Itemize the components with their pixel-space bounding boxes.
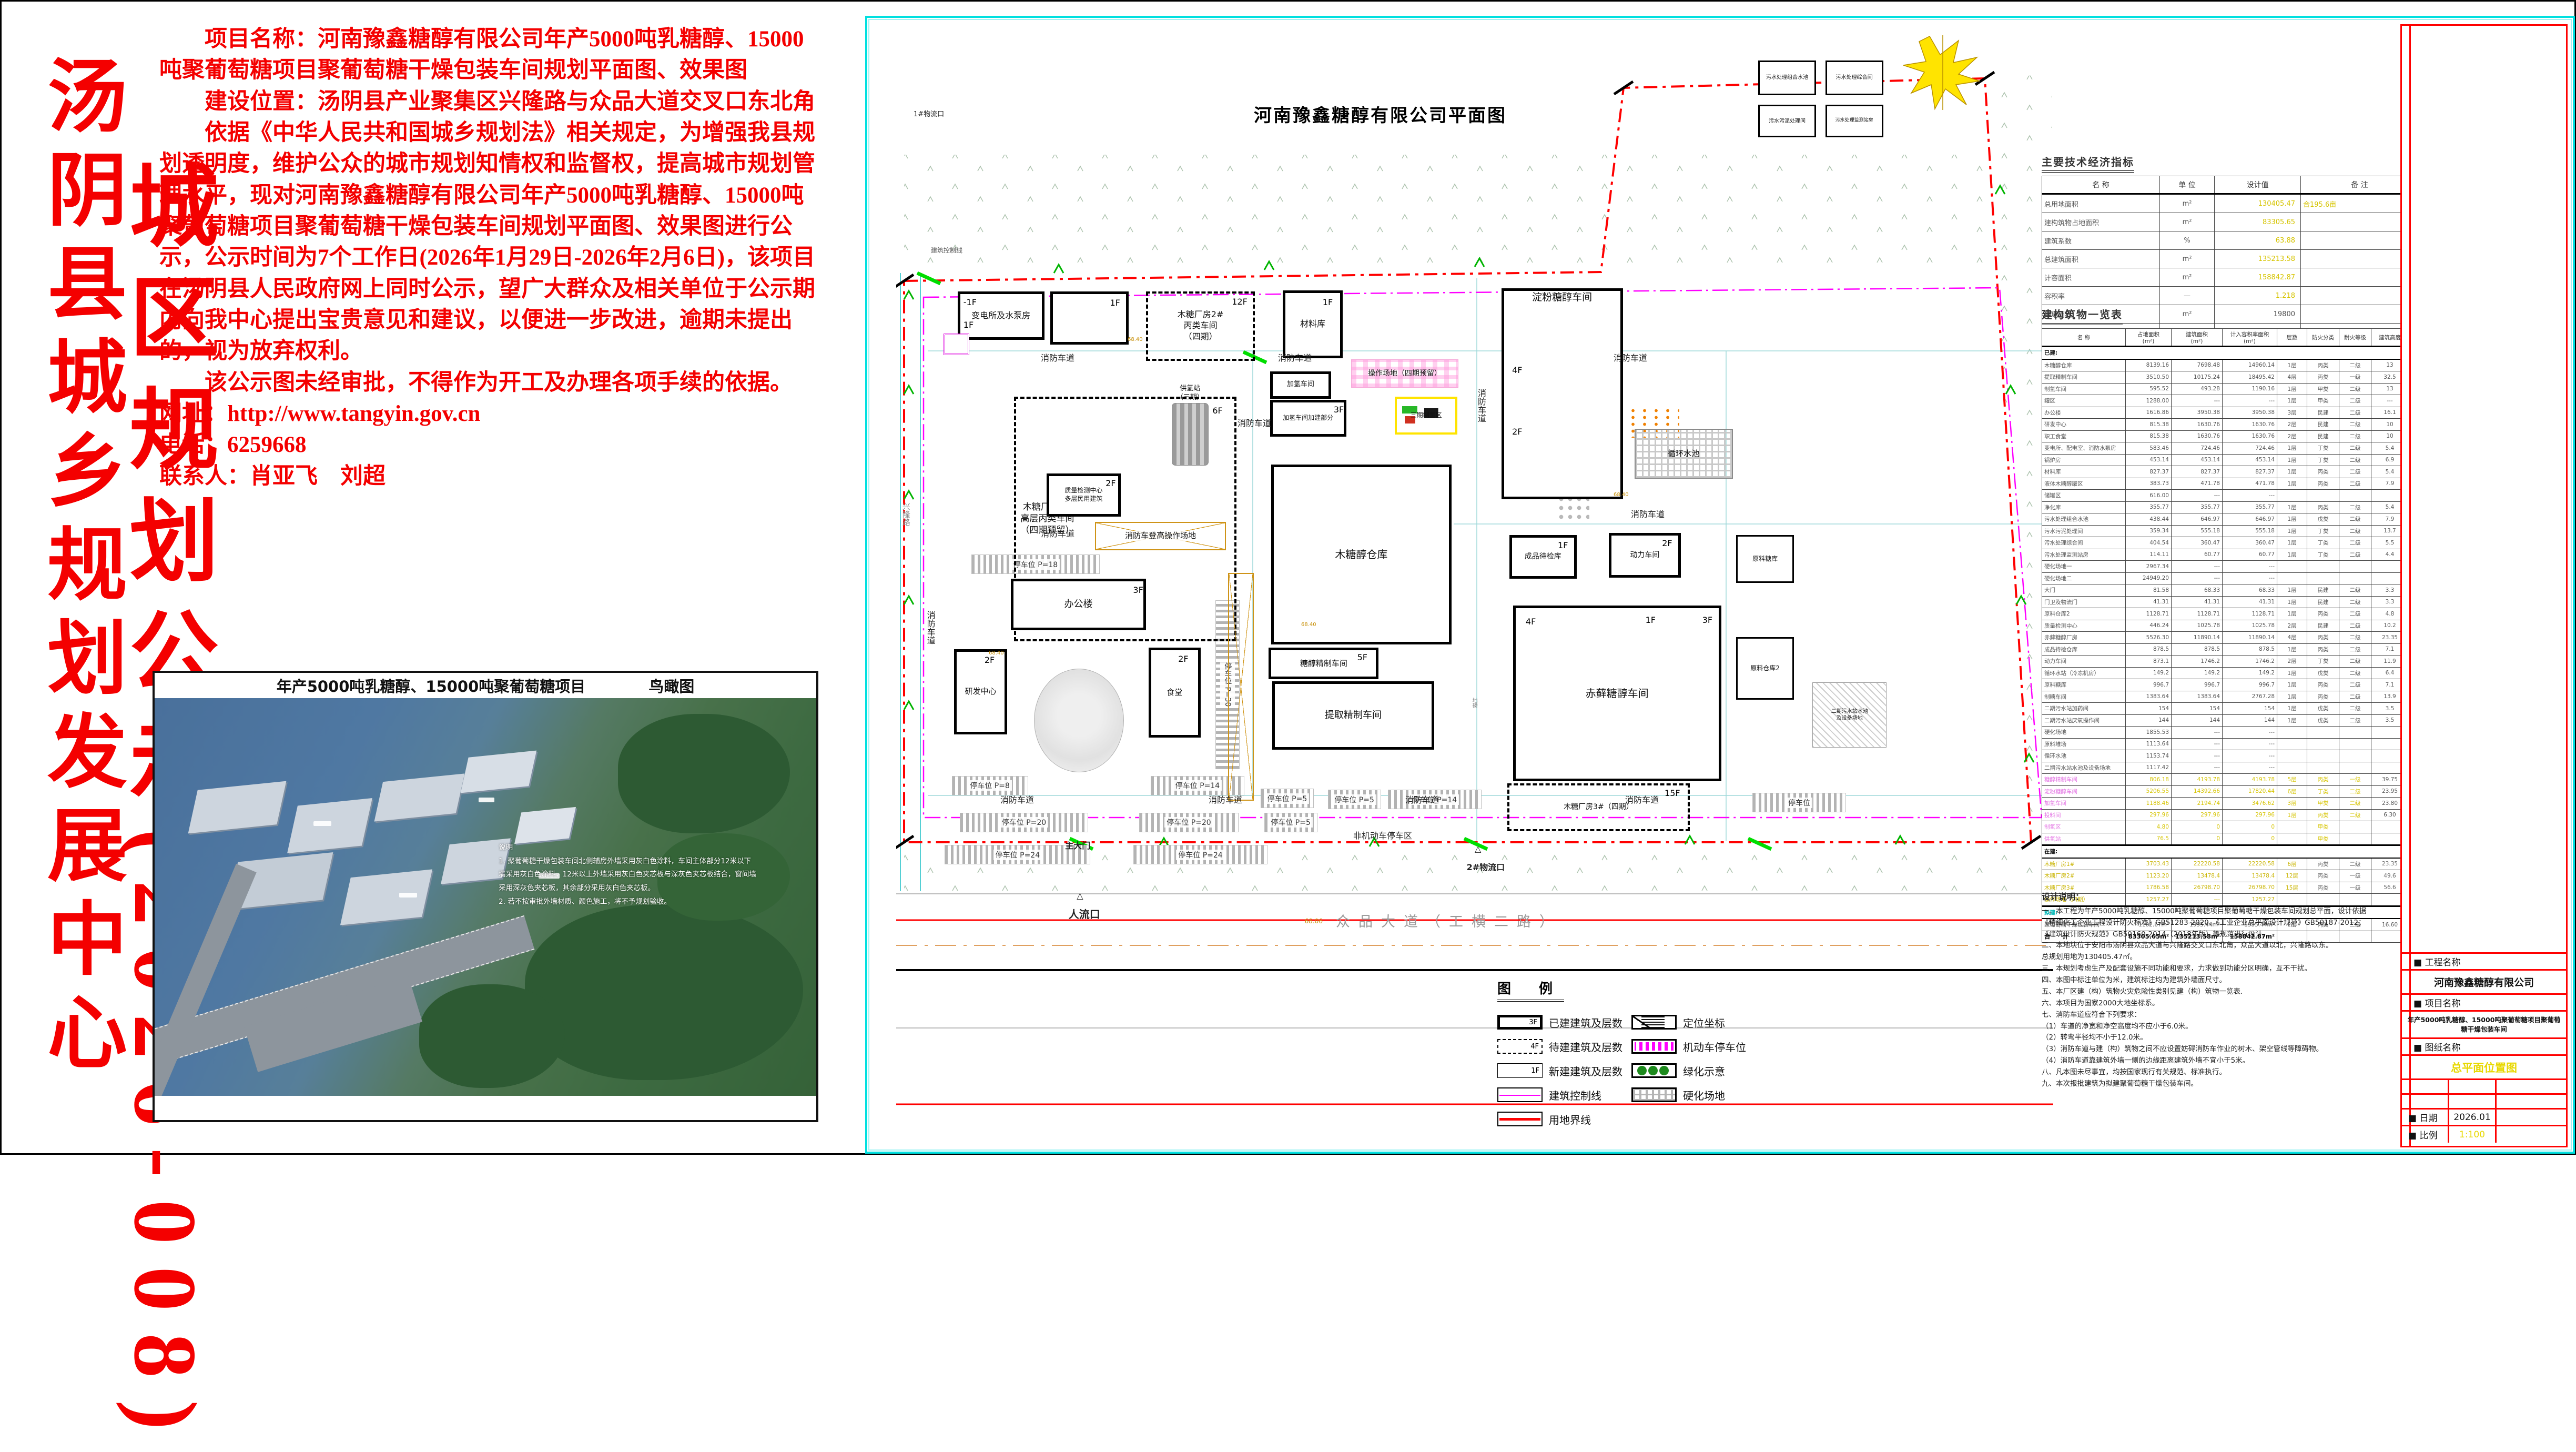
plan-building-label: 成品待检库 — [1525, 552, 1561, 561]
buildings-row: 供氢站76.500甲类 — [2042, 833, 2442, 845]
buildings-cell: 297.96 — [2172, 809, 2223, 821]
buildings-cell: 原料堆场 — [2042, 738, 2126, 750]
buildings-row: 净化库355.77355.77355.771层丙类二级5.4已办证 — [2042, 501, 2442, 513]
buildings-cell: 1层 — [2277, 643, 2307, 656]
buildings-cell: 1层 — [2277, 478, 2307, 490]
buildings-cell: 动力车间 — [2042, 656, 2126, 668]
buildings-cell: 民建 — [2307, 620, 2339, 632]
buildings-cell: 二期污水站加药间 — [2042, 703, 2126, 715]
buildings-cell: 446.24 — [2126, 620, 2172, 632]
buildings-cell: 甲类 — [2307, 833, 2339, 845]
tb-sheet-value: 总平面位置图 — [2451, 1060, 2517, 1075]
buildings-cell: 1层 — [2277, 596, 2307, 608]
buildings-cell: 二级 — [2339, 549, 2371, 561]
plan-building-label: 原料仓库2 — [1750, 664, 1780, 673]
buildings-cell — [2307, 738, 2339, 750]
plan-label: 68.40 — [1301, 622, 1316, 628]
buildings-cell: 二期污水站水池及设备场地 — [2042, 762, 2126, 774]
buildings-cell: 硬化场地二 — [2042, 572, 2126, 584]
design-notes: 设计说明： 一、本工程为年产5000吨乳糖醇、15000吨聚葡萄糖项目聚葡萄糖干… — [2042, 890, 2405, 1090]
buildings-cell: 丁类 — [2307, 454, 2339, 466]
buildings-cell: 赤藓糖醇厂房 — [2042, 632, 2126, 644]
buildings-cell: 1025.78 — [2223, 620, 2277, 632]
buildings-cell: --- — [2223, 750, 2277, 762]
buildings-cell: 硬化场地一 — [2042, 561, 2126, 573]
plan-building-label: 二期污水站水池 及设备场地 — [1831, 708, 1868, 722]
buildings-cell: 二级 — [2339, 430, 2371, 442]
legend-item: 3F已建建筑及层数 — [1497, 1015, 1631, 1030]
buildings-cell: 二级 — [2339, 383, 2371, 395]
buildings-cell: 二级 — [2339, 656, 2371, 668]
buildings-cell: 二级 — [2339, 501, 2371, 513]
green-circle-icon — [1648, 1066, 1658, 1075]
plan-building-label: 提取精制车间 — [1325, 709, 1382, 721]
buildings-cell: 1层 — [2277, 383, 2307, 395]
buildings-cell: 木糖厂房1# — [2042, 858, 2126, 870]
buildings-cell: --- — [2172, 561, 2223, 573]
plan-building: 污水处理监测站房 — [1825, 105, 1883, 137]
buildings-cell: 质量检测中心 — [2042, 620, 2126, 632]
buildings-cell: 114.11 — [2126, 549, 2172, 561]
buildings-cell: 1746.2 — [2172, 656, 2223, 668]
buildings-cell: 投料间 — [2042, 809, 2126, 821]
aerial-note-line: 墙采用灰白色涂料，12米以上外墙采用灰白色夹芯板与深灰色夹芯板结合，窗间墙 — [499, 868, 803, 882]
buildings-cell: --- — [2172, 490, 2223, 502]
floor-tag: 1F — [1110, 298, 1120, 308]
floor-tag: 2F — [985, 655, 995, 665]
plan-building-label: 污水污泥处理间 — [1769, 118, 1806, 125]
buildings-cell: 戊类 — [2307, 703, 2339, 715]
plan-building: 研发中心2F — [954, 649, 1007, 735]
buildings-cell: 1746.2 — [2223, 656, 2277, 668]
design-note-line: 七、消防车道应符合下列要求： — [2042, 1010, 2405, 1021]
buildings-cell: 13478.4 — [2223, 870, 2277, 882]
buildings-cell: 2层 — [2277, 620, 2307, 632]
buildings-section-header: 在建: — [2042, 845, 2442, 858]
buildings-cell: 383.73 — [2126, 478, 2172, 490]
buildings-cell: 60.77 — [2223, 549, 2277, 561]
notice-page: 汤阴县城乡规划发展中心 城区规划公示(2026-008) 项目名称：河南豫鑫糖醇… — [0, 0, 2576, 1155]
floor-tag: 3F — [1133, 585, 1143, 595]
buildings-row: 二期污水站加药间1541541541层戊类二级3.5已办证 — [2042, 703, 2442, 715]
plan-label: 消防车道 — [1625, 793, 1659, 805]
indicators-row: 容积率—1.218 — [2042, 287, 2419, 305]
buildings-cell: --- — [2172, 395, 2223, 407]
buildings-row: 污水处理监测站房114.1160.7760.771层丁类二级4.4已办证 — [2042, 549, 2442, 561]
buildings-cell: 1288.00 — [2126, 395, 2172, 407]
plan-building-label: 木糖厂房3#（四期） — [1564, 802, 1634, 812]
buildings-cell: --- — [2223, 762, 2277, 774]
floor-tag: 1F — [1558, 540, 1568, 550]
notice-paragraph: 项目名称：河南豫鑫糖醇有限公司年产5000吨乳糖醇、15000吨聚葡萄糖项目聚葡… — [159, 24, 823, 86]
aerial-caption: 年产5000吨乳糖醇、15000吨聚葡萄糖项目 鸟瞰图 — [155, 673, 816, 698]
design-note-line: 《精细化工企业工程设计防火标准》GB51283-2020、《工业企业总平面设计规… — [2042, 917, 2405, 929]
buildings-cell: 木糖醇仓库 — [2042, 359, 2126, 371]
indicators-row: 总建筑面积m²135213.58 — [2042, 250, 2419, 268]
design-note-line: （1）车道的净宽和净空高度均不应小于6.0米。 — [2042, 1021, 2405, 1033]
buildings-cell: 戊类 — [2307, 714, 2339, 727]
buildings-cell: 996.7 — [2172, 679, 2223, 691]
buildings-cell: 453.14 — [2172, 454, 2223, 466]
buildings-cell: 甲类 — [2307, 395, 2339, 407]
buildings-cell: 583.46 — [2126, 442, 2172, 455]
buildings-cell: 453.14 — [2223, 454, 2277, 466]
plan-label: 地磅 — [1470, 698, 1478, 708]
plan-building: 动力车间2F — [1609, 533, 1680, 577]
indicators-row: 建构筑物占地面积m²83305.65 — [2042, 213, 2419, 231]
buildings-cell: 净化库 — [2042, 501, 2126, 513]
plan-building-label: 污水处理组合水池 — [1766, 74, 1808, 81]
plan-building: 成品待检库1F — [1509, 535, 1577, 578]
buildings-cell: 355.77 — [2223, 501, 2277, 513]
buildings-cell: 丙类 — [2307, 870, 2339, 882]
legend-item: 绿化示意 — [1631, 1063, 1789, 1078]
aerial-note-line: 2. 若不按审批外墙材质、颜色施工，将不予规划验收。 — [499, 895, 803, 909]
buildings-cell: 1层 — [2277, 359, 2307, 371]
plan-building: 提取精制车间 — [1272, 681, 1434, 750]
buildings-cell: 制氢车间 — [2042, 383, 2126, 395]
buildings-cell: 646.97 — [2223, 513, 2277, 526]
buildings-cell: 污水处理综合间 — [2042, 537, 2126, 549]
buildings-cell: 循环水站（冷冻机房） — [2042, 667, 2126, 679]
buildings-cell: 41.31 — [2126, 596, 2172, 608]
buildings-row: 职工食堂815.381630.761630.762层民建二级10已办证 — [2042, 430, 2442, 442]
indicators-cell: 1.218 — [2215, 287, 2301, 305]
buildings-cell — [2307, 727, 2339, 739]
parking-label: 停车位 P=20 — [1164, 817, 1213, 828]
legend-label: 待建建筑及层数 — [1549, 1039, 1622, 1054]
buildings-cell: 二级 — [2339, 442, 2371, 455]
buildings-row: 原料堆场1113.64------ — [2042, 738, 2442, 750]
buildings-cell: 2层 — [2277, 656, 2307, 668]
buildings-cell: 丙类 — [2307, 691, 2339, 703]
indicators-row: 建筑系数%63.88 — [2042, 231, 2419, 250]
buildings-cell: 丙类 — [2307, 858, 2339, 870]
buildings-row: 成品待检仓库878.5878.5878.51层丙类二级7.1已办证 — [2042, 643, 2442, 656]
floor-tag: -1F — [964, 297, 977, 307]
buildings-cell: 二级 — [2339, 407, 2371, 419]
indicators-cell: 总用地面积 — [2042, 194, 2160, 213]
buildings-cell: --- — [2223, 572, 2277, 584]
buildings-cell: 1层 — [2277, 679, 2307, 691]
floor-tag: 1F — [1646, 615, 1656, 625]
buildings-cell: 原料仓库2 — [2042, 608, 2126, 620]
plan-label: △ — [1475, 844, 1481, 854]
buildings-cell: 724.46 — [2223, 442, 2277, 455]
buildings-cell: 996.7 — [2126, 679, 2172, 691]
parking-strip: 停车位 P=5 — [1261, 789, 1314, 808]
buildings-cell: 二级 — [2339, 667, 2371, 679]
buildings-cell: 民建 — [2307, 596, 2339, 608]
buildings-cell — [2277, 490, 2307, 502]
indicators-cell: 158842.87 — [2215, 268, 2301, 287]
design-note-line: 二、本地块位于安阳市汤阴县众品大道与兴隆路交叉口东北角，众品大道以北，兴隆路以东… — [2042, 940, 2405, 952]
design-note-line: （4）消防车道靠建筑外墙一侧的边缘距离建筑外墙不宜小于5米。 — [2042, 1055, 2405, 1067]
buildings-cell: 污水处理组合水池 — [2042, 513, 2126, 526]
indicators-cell: % — [2160, 231, 2215, 250]
plan-building: 材料库1F — [1283, 290, 1343, 359]
buildings-cell: 门卫及物流门 — [2042, 596, 2126, 608]
plan-label: 消防车道 — [1238, 416, 1271, 429]
green-swatch-icon — [1631, 1063, 1677, 1078]
indicators-table-title: 主要技术经济指标 — [2042, 154, 2134, 173]
buildings-cell: 职工食堂 — [2042, 430, 2126, 442]
buildings-cell: 453.14 — [2126, 454, 2172, 466]
buildings-cell: 3510.50 — [2126, 371, 2172, 384]
plan-building: 木糖厂房2# 丙类车间 （四期）12F — [1146, 291, 1255, 361]
buildings-cell: 815.38 — [2126, 419, 2172, 431]
buildings-table: 名 称占地面积 (m²)建筑面积 (m²)计入容积率面积 (m²)层数防火分类耐… — [2042, 328, 2442, 943]
plan-building: 污水污泥处理间 — [1758, 105, 1816, 137]
buildings-cell: 丙类 — [2307, 679, 2339, 691]
plan-building: 加氢车间 — [1270, 371, 1332, 399]
buildings-cell: 丁类 — [2307, 656, 2339, 668]
floor-tag: 3F — [1702, 615, 1712, 625]
aerial-caption-type: 鸟瞰图 — [648, 674, 694, 697]
indicators-cell: 63.88 — [2215, 231, 2301, 250]
buildings-cell: 996.7 — [2223, 679, 2277, 691]
plan-building: 原料糖库 — [1736, 535, 1794, 583]
buildings-cell: 二级 — [2339, 620, 2371, 632]
buildings-cell: 154 — [2223, 703, 2277, 715]
plan-building-label: 原料糖库 — [1752, 555, 1778, 563]
plan-building: 污水处理综合间 — [1825, 60, 1883, 95]
buildings-cell: --- — [2223, 490, 2277, 502]
legend-label: 机动车停车位 — [1683, 1039, 1746, 1054]
buildings-cell: 储罐区 — [2042, 490, 2126, 502]
buildings-cell: 81.58 — [2126, 584, 2172, 597]
legend-item: 1F新建建筑及层数 — [1497, 1063, 1631, 1078]
indicators-row: 计容面积m²158842.87 — [2042, 268, 2419, 287]
buildings-cell: 1层 — [2277, 549, 2307, 561]
plan-building: 赤藓糖醇车间4F1F3F — [1513, 606, 1721, 781]
floor-tag: 5F — [1357, 652, 1367, 662]
parking-label: 停车位 P=14 — [1173, 780, 1222, 791]
buildings-cell: 丙类 — [2307, 359, 2339, 371]
tb-project-value: 河南豫鑫糖醇有限公司 — [2434, 975, 2534, 989]
indicators-header: 设计值 — [2215, 176, 2301, 194]
buildings-cell: 1383.64 — [2126, 691, 2172, 703]
indicators-row: 总用地面积m²130405.47合195.6亩 — [2042, 194, 2419, 213]
parking-label: 停车位 P=24 — [993, 850, 1042, 860]
indicators-header-row: 名 称单 位设计值备 注 — [2042, 176, 2419, 194]
buildings-cell: 民建 — [2307, 407, 2339, 419]
buildings-cell: 41.31 — [2172, 596, 2223, 608]
buildings-section-row: 在建: — [2042, 845, 2442, 858]
floor-tag: 2F — [1512, 427, 1522, 437]
buildings-cell: 1153.74 — [2126, 750, 2172, 762]
plan-building: 循环水池 — [1635, 429, 1733, 479]
buildings-cell: 3层 — [2277, 798, 2307, 810]
buildings-cell: 丙类 — [2307, 371, 2339, 384]
plan-label: 68.40 — [989, 650, 1004, 656]
plan-building: 1F — [1050, 291, 1129, 345]
buildings-cell: 24949.20 — [2126, 572, 2172, 584]
buildings-row: 原料糖库996.7996.7996.71层丙类二级7.1已办证 — [2042, 679, 2442, 691]
buildings-row: 淀粉糖醇车间5206.5514392.6617820.446层丁类二级23.95 — [2042, 785, 2442, 798]
buildings-cell: 1层 — [2277, 691, 2307, 703]
title-block-rows: ■ 工程名称 河南豫鑫糖醇有限公司 ■ 项目名称 年产5000吨乳糖醇、1500… — [2402, 952, 2566, 1143]
buildings-cell — [2277, 561, 2307, 573]
design-note-line: （2）转弯半径均不小于12.0米。 — [2042, 1032, 2405, 1044]
buildings-cell: --- — [2172, 727, 2223, 739]
buildings-cell: 二级 — [2339, 714, 2371, 727]
design-note-line: 三、本规划考虑生产及配套设施不同功能和要求，力求做到功能分区明确，互不干扰。 — [2042, 963, 2405, 975]
buildings-cell: 355.77 — [2126, 501, 2172, 513]
indicators-cell: 计容面积 — [2042, 268, 2160, 287]
buildings-cell: 13478.4 — [2172, 870, 2223, 882]
buildings-cell: 丙类 — [2307, 643, 2339, 656]
buildings-header: 名 称 — [2042, 329, 2126, 347]
plan-building-label: 质量检测中心 多层民用建筑 — [1064, 487, 1102, 503]
buildings-cell: 149.2 — [2126, 667, 2172, 679]
buildings-cell: --- — [2223, 561, 2277, 573]
buildings-row: 制氢区4.8000甲类 — [2042, 821, 2442, 833]
buildings-cell: 1025.78 — [2172, 620, 2223, 632]
buildings-row: 罐区1288.00------1层甲类二级--- — [2042, 395, 2442, 407]
buildings-cell: 二级 — [2339, 359, 2371, 371]
notice-paragraph: 电话：6259668 — [159, 429, 823, 460]
buildings-cell: 14392.66 — [2172, 785, 2223, 798]
buildings-cell: 11890.14 — [2172, 632, 2223, 644]
buildings-cell — [2307, 490, 2339, 502]
parking-strip: 停车位 P=8 — [952, 776, 1028, 795]
buildings-row: 循环水池1153.74------ — [2042, 750, 2442, 762]
parking-strip: 停车位 P=20 — [960, 813, 1088, 832]
buildings-cell: 0 — [2223, 821, 2277, 833]
buildings-cell: 液体木糖醇罐区 — [2042, 478, 2126, 490]
buildings-cell: 0 — [2223, 833, 2277, 845]
buildings-cell: 二级 — [2339, 513, 2371, 526]
buildings-cell: 二级 — [2339, 608, 2371, 620]
buildings-cell: 二期污水站厌氧操作间 — [2042, 714, 2126, 727]
plan-building: 消防车登高操作场地 — [1095, 522, 1226, 550]
buildings-row: 制糖车间1383.641383.642767.281层丙类二级13.9已办证 — [2042, 691, 2442, 703]
design-note-line: 总规划用地为130405.47㎡。 — [2042, 952, 2405, 963]
buildings-cell: 471.78 — [2223, 478, 2277, 490]
drawing-sheet: 河南豫鑫糖醇有限公司平面图 — [865, 16, 2575, 1154]
plan-building-label: 变电所及水泵房 — [971, 310, 1030, 321]
buildings-cell: 1383.64 — [2172, 691, 2223, 703]
buildings-cell: --- — [2223, 727, 2277, 739]
buildings-cell: 149.2 — [2223, 667, 2277, 679]
buildings-cell: 木糖厂房2# — [2042, 870, 2126, 882]
design-note-line: 九、本次报批建筑为拟建聚葡萄糖干燥包装车间。 — [2042, 1078, 2405, 1090]
plan-building — [944, 334, 969, 355]
buildings-row: 木糖厂房2#1123.2013478.413478.412层丙类一级49.6 — [2042, 870, 2442, 882]
site-plan: 众品大道（工横二路） 变电所及水泵房-1F1F1F木糖厂房2# 丙类车间 （四期… — [896, 26, 2053, 1110]
buildings-cell: 一级 — [2339, 371, 2371, 384]
plan-building: 糖醇精制车间5F — [1269, 648, 1378, 679]
buildings-cell: 1层 — [2277, 714, 2307, 727]
buildings-cell: 二级 — [2339, 478, 2371, 490]
legend: 图 例 3F已建建筑及层数定位坐标4F待建建筑及层数机动车停车位1F新建建筑及层… — [1497, 978, 1792, 1131]
floor-tag: 3F — [1334, 405, 1344, 415]
buildings-cell: --- — [2172, 762, 2223, 774]
buildings-cell: 6层 — [2277, 858, 2307, 870]
plan-building: 木糖醇仓库 — [1271, 465, 1452, 644]
buildings-cell: 淀粉糖醇车间 — [2042, 785, 2126, 798]
buildings-row: 质量检测中心446.241025.781025.782层民建二级10.2已办证 — [2042, 620, 2442, 632]
buildings-row: 锅炉房453.14453.14453.141层丁类二级6.9已办证 — [2042, 454, 2442, 466]
buildings-cell: 丙类 — [2307, 608, 2339, 620]
plan-building-label: 木糖厂房2# 丙类车间 （四期） — [1178, 309, 1224, 342]
buildings-cell: 68.33 — [2223, 584, 2277, 597]
notice-paragraph: 联系人：肖亚飞 刘超 — [159, 461, 823, 492]
buildings-cell: 144 — [2126, 714, 2172, 727]
buildings-cell: 二级 — [2339, 691, 2371, 703]
buildings-cell: 873.1 — [2126, 656, 2172, 668]
buildings-cell: 加氢车间 — [2042, 798, 2126, 810]
buildings-header-row: 名 称占地面积 (m²)建筑面积 (m²)计入容积率面积 (m²)层数防火分类耐… — [2042, 329, 2442, 347]
buildings-cell: 一级 — [2339, 774, 2371, 786]
buildings-cell: 二级 — [2339, 596, 2371, 608]
buildings-cell: --- — [2223, 738, 2277, 750]
buildings-cell: 0 — [2172, 821, 2223, 833]
buildings-cell: 4层 — [2277, 632, 2307, 644]
buildings-cell — [2339, 727, 2371, 739]
plan-building: 质量检测中心 多层民用建筑2F — [1047, 473, 1121, 517]
plan-building-label: 加氢车间加建部分 — [1283, 414, 1333, 422]
buildings-cell: 大门 — [2042, 584, 2126, 597]
tb-scale-label: ■ 比例 — [2402, 1126, 2449, 1143]
tb-date-value: 2026.01 — [2449, 1110, 2497, 1125]
notice-body: 项目名称：河南豫鑫糖醇有限公司年产5000吨乳糖醇、15000吨聚葡萄糖项目聚葡… — [159, 24, 823, 492]
floor-tag: 4F — [1526, 617, 1536, 627]
buildings-cell: 0 — [2172, 833, 2223, 845]
buildings-cell: 41.31 — [2223, 596, 2277, 608]
buildings-cell: 144 — [2223, 714, 2277, 727]
tb-date-label: ■ 日期 — [2402, 1110, 2449, 1125]
buildings-cell: 1113.64 — [2126, 738, 2172, 750]
buildings-cell — [2339, 762, 2371, 774]
plan-building-label: 材料库 — [1300, 319, 1325, 330]
buildings-cell: 戊类 — [2307, 513, 2339, 526]
buildings-cell: 3703.43 — [2126, 858, 2172, 870]
buildings-cell: 724.46 — [2172, 442, 2223, 455]
buildings-cell — [2277, 762, 2307, 774]
buildings-cell: 1层 — [2277, 466, 2307, 478]
buildings-row: 制氢车间595.52493.281190.161层甲类二级13已办证 — [2042, 383, 2442, 395]
buildings-cell: 成品待检仓库 — [2042, 643, 2126, 656]
plan-label: 消防车道 — [1614, 351, 1647, 364]
buildings-row: 提取精制车间3510.5010175.2418495.424层丙类一级32.5已… — [2042, 371, 2442, 384]
buildings-cell — [2277, 821, 2307, 833]
buildings-cell: 4193.78 — [2223, 774, 2277, 786]
buildings-row: 污水处理组合水池438.44646.97646.971层戊类二级7.9已办证 — [2042, 513, 2442, 526]
indicators-cell: 容积率 — [2042, 287, 2160, 305]
new-swatch-icon: 1F — [1497, 1063, 1543, 1078]
buildings-cell: 硬化场地 — [2042, 727, 2126, 739]
buildings-cell: 二级 — [2339, 798, 2371, 810]
floor-tag: 12F — [1232, 297, 1248, 307]
built-swatch-icon: 3F — [1497, 1015, 1543, 1030]
buildings-cell: 丁类 — [2307, 785, 2339, 798]
buildings-header: 耐火等级 — [2339, 329, 2371, 347]
plan-building-label: 赤藓糖醇车间 — [1586, 687, 1649, 700]
buildings-cell: 1层 — [2277, 537, 2307, 549]
floor-tag: 1F — [1323, 297, 1333, 307]
parking-label: 停车位 P=5 — [1269, 817, 1313, 828]
buildings-cell: 丙类 — [2307, 809, 2339, 821]
buildings-cell: 493.28 — [2172, 383, 2223, 395]
buildings-cell: 359.34 — [2126, 525, 2172, 537]
buildings-cell: 1128.71 — [2126, 608, 2172, 620]
plan-building-label: 污水处理综合间 — [1836, 74, 1873, 81]
buildings-header: 防火分类 — [2307, 329, 2339, 347]
indicators-cell: 总建筑面积 — [2042, 250, 2160, 268]
parking-label: 停车位 — [1786, 798, 1812, 808]
